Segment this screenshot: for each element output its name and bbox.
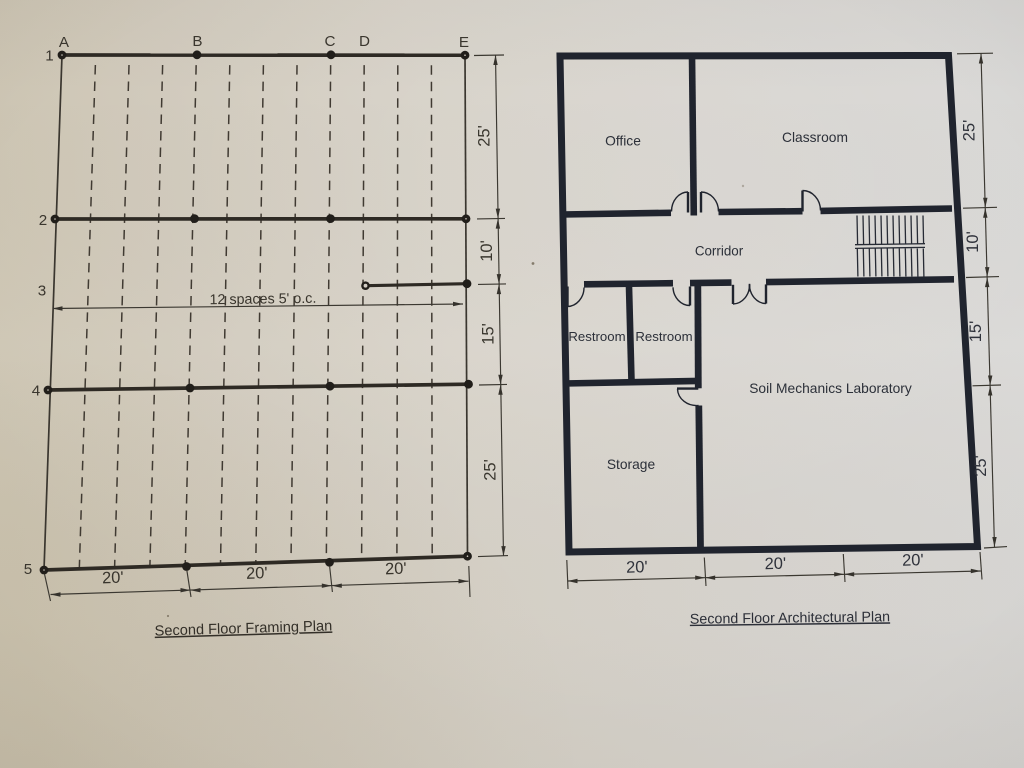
svg-text:5: 5 bbox=[24, 561, 32, 578]
svg-text:1: 1 bbox=[45, 48, 53, 65]
svg-text:Storage: Storage bbox=[607, 457, 656, 472]
svg-text:20': 20' bbox=[246, 564, 268, 583]
svg-text:B: B bbox=[192, 33, 202, 50]
svg-text:15': 15' bbox=[967, 321, 985, 343]
svg-text:Restroom: Restroom bbox=[635, 329, 692, 344]
svg-text:E: E bbox=[459, 34, 469, 51]
svg-text:Corridor: Corridor bbox=[695, 244, 744, 259]
svg-text:D: D bbox=[359, 33, 370, 50]
svg-text:Classroom: Classroom bbox=[782, 130, 848, 145]
svg-text:20': 20' bbox=[902, 551, 924, 570]
svg-text:2: 2 bbox=[39, 212, 47, 229]
svg-text:4: 4 bbox=[32, 383, 40, 400]
svg-text:25': 25' bbox=[482, 459, 500, 481]
svg-text:25': 25' bbox=[476, 125, 494, 147]
svg-text:Restroom: Restroom bbox=[568, 329, 625, 344]
svg-text:15': 15' bbox=[480, 323, 498, 345]
svg-text:10': 10' bbox=[964, 231, 982, 253]
svg-text:20': 20' bbox=[385, 560, 407, 579]
svg-text:20': 20' bbox=[102, 569, 124, 588]
svg-text:20': 20' bbox=[764, 555, 786, 574]
svg-text:20': 20' bbox=[626, 558, 648, 577]
svg-text:25': 25' bbox=[972, 455, 990, 477]
svg-text:25': 25' bbox=[961, 120, 979, 142]
svg-text:Second Floor Architectural Pla: Second Floor Architectural Plan bbox=[690, 609, 890, 627]
svg-text:C: C bbox=[325, 33, 336, 50]
svg-text:Soil Mechanics Laboratory: Soil Mechanics Laboratory bbox=[749, 381, 912, 396]
svg-text:Office: Office bbox=[605, 134, 641, 149]
svg-text:3: 3 bbox=[38, 283, 46, 300]
svg-text:A: A bbox=[59, 34, 70, 51]
svg-text:10': 10' bbox=[478, 240, 496, 262]
svg-text:12 spaces 5' o.c.: 12 spaces 5' o.c. bbox=[209, 291, 316, 308]
